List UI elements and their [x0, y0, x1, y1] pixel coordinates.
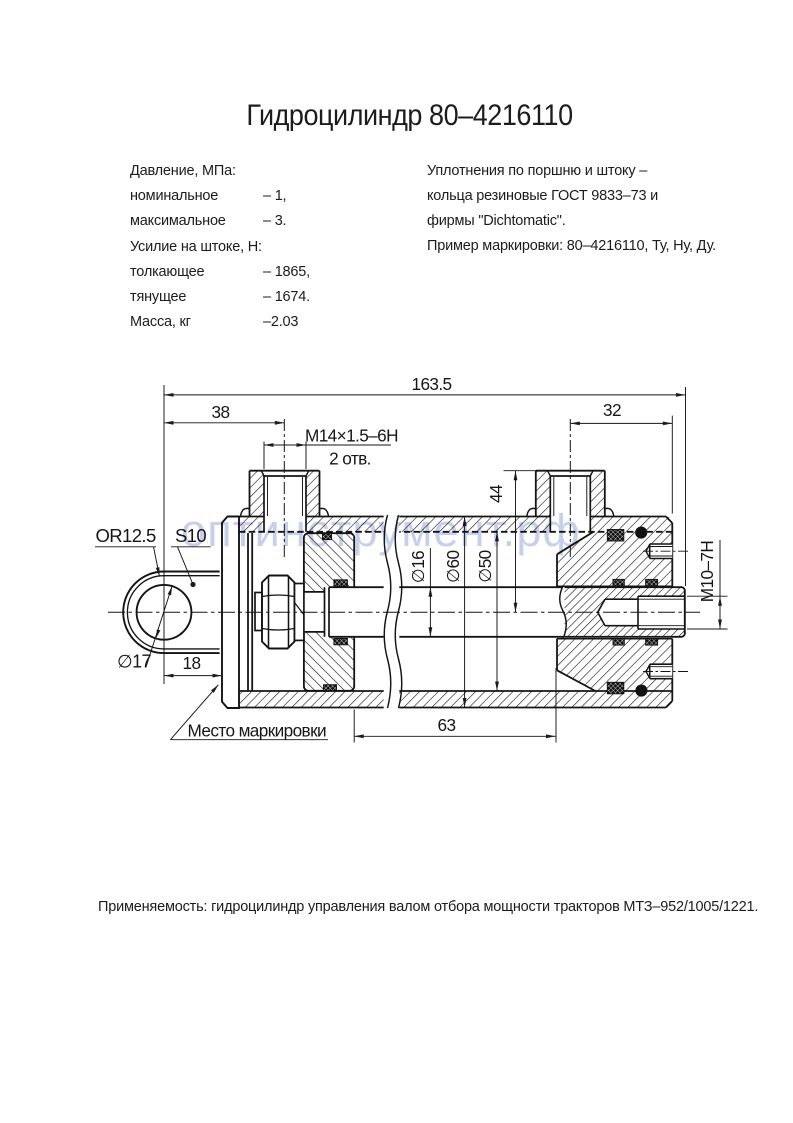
- svg-text:M14×1.5–6H: M14×1.5–6H: [305, 426, 398, 446]
- svg-text:38: 38: [212, 402, 230, 422]
- svg-text:163.5: 163.5: [411, 374, 451, 394]
- svg-text:∅17: ∅17: [117, 652, 151, 672]
- svg-text:M10–7H: M10–7H: [697, 541, 717, 603]
- svg-text:32: 32: [603, 400, 621, 420]
- svg-text:18: 18: [183, 653, 201, 673]
- svg-text:Место маркировки: Место маркировки: [188, 721, 327, 741]
- svg-text:2 отв.: 2 отв.: [329, 449, 371, 469]
- svg-text:63: 63: [438, 715, 456, 735]
- svg-text:оптинструмент.рф: оптинструмент.рф: [181, 505, 581, 556]
- svg-text:OR12.5: OR12.5: [96, 525, 156, 546]
- svg-text:44: 44: [486, 484, 506, 503]
